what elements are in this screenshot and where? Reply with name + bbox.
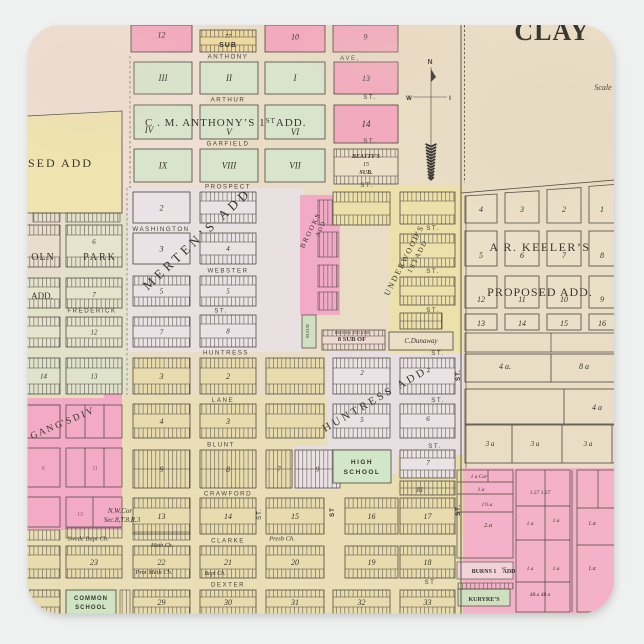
svg-text:3: 3	[159, 372, 164, 381]
svg-text:13: 13	[91, 372, 99, 380]
svg-text:6: 6	[426, 415, 430, 423]
svg-text:N.W.Cor: N.W.Cor	[107, 507, 133, 515]
svg-text:GARFIELD: GARFIELD	[207, 141, 250, 148]
svg-text:ST: ST	[425, 579, 436, 586]
svg-text:ADD.: ADD.	[31, 291, 53, 301]
svg-text:PROPOSED ADD.: PROPOSED ADD.	[487, 285, 593, 299]
svg-text:5: 5	[360, 416, 364, 424]
svg-text:1.a: 1.a	[553, 518, 560, 524]
svg-text:7: 7	[92, 291, 96, 299]
svg-text:77: 77	[225, 34, 232, 40]
svg-text:21: 21	[224, 558, 232, 567]
svg-text:9: 9	[316, 465, 320, 473]
svg-text:CRAWFORD: CRAWFORD	[204, 491, 252, 498]
svg-text:5: 5	[226, 287, 230, 295]
svg-text:ST.: ST.	[214, 308, 227, 315]
svg-text:1.a: 1.a	[588, 566, 596, 572]
svg-text:8: 8	[226, 327, 230, 335]
svg-text:5: 5	[479, 251, 483, 260]
svg-text:SCHOOL: SCHOOL	[75, 605, 107, 611]
svg-text:15: 15	[291, 512, 299, 521]
svg-text:Meth Ch.: Meth Ch.	[150, 543, 173, 549]
svg-text:3: 3	[159, 244, 164, 253]
svg-text:LANE: LANE	[212, 397, 234, 404]
svg-text:SCHOOL: SCHOOL	[344, 469, 381, 476]
svg-text:2: 2	[226, 372, 230, 381]
svg-text:20: 20	[291, 558, 299, 567]
svg-text:ST.: ST.	[428, 443, 441, 450]
svg-text:WEBSTER: WEBSTER	[207, 268, 248, 275]
svg-text:17: 17	[424, 512, 433, 521]
svg-text:VIII: VIII	[222, 161, 237, 171]
svg-text:ADD: ADD	[503, 569, 517, 575]
svg-text:1.a: 1.a	[588, 521, 596, 527]
svg-text:ST.: ST.	[431, 350, 444, 357]
svg-text:16: 16	[598, 319, 606, 328]
svg-text:16: 16	[368, 512, 376, 521]
svg-text:14: 14	[518, 319, 526, 328]
svg-text:7: 7	[426, 459, 430, 467]
svg-text:2: 2	[160, 203, 164, 212]
svg-text:COMMON: COMMON	[74, 596, 108, 602]
svg-text:7: 7	[277, 465, 281, 473]
svg-text:13: 13	[158, 512, 166, 521]
svg-text:ST.: ST.	[431, 397, 444, 404]
svg-text:4 a.: 4 a.	[499, 362, 511, 371]
svg-text:ST.: ST.	[426, 268, 439, 275]
svg-text:SUB.: SUB.	[359, 170, 373, 176]
svg-text:ST.: ST.	[363, 138, 376, 145]
svg-text:A R. KEELER’S: A R. KEELER’S	[489, 240, 590, 254]
svg-text:14: 14	[40, 372, 48, 380]
svg-text:29: 29	[158, 598, 166, 607]
svg-text:1.a: 1.a	[527, 521, 534, 527]
svg-text:1½.a: 1½.a	[482, 501, 493, 508]
svg-text:OLN: OLN	[31, 252, 55, 263]
svg-text:7: 7	[160, 328, 164, 336]
svg-text:SUB: SUB	[219, 42, 237, 49]
svg-text:23: 23	[90, 558, 98, 567]
svg-text:BLUNT: BLUNT	[207, 442, 235, 449]
svg-text:8 a: 8 a	[579, 362, 589, 371]
svg-text:48.a 48.a: 48.a 48.a	[530, 591, 551, 598]
svg-text:ST.: ST.	[360, 182, 373, 189]
svg-text:ANTHONY: ANTHONY	[208, 54, 249, 61]
svg-text:33: 33	[423, 598, 432, 607]
svg-text:3: 3	[225, 417, 230, 426]
svg-text:HUNTRESS: HUNTRESS	[203, 350, 249, 357]
svg-text:8 SUB OF: 8 SUB OF	[338, 336, 366, 343]
svg-text:13: 13	[77, 512, 83, 518]
svg-text:8: 8	[600, 251, 604, 260]
svg-text:22: 22	[158, 558, 166, 567]
svg-text:C.Dunaway: C.Dunaway	[404, 337, 438, 345]
svg-text:Prot Meth Ch.: Prot Meth Ch.	[134, 569, 173, 576]
svg-text:18: 18	[424, 558, 432, 567]
svg-text:3 a: 3 a	[530, 440, 540, 448]
svg-text:5: 5	[160, 287, 164, 295]
svg-text:13: 13	[477, 319, 485, 328]
svg-text:ARTHUR: ARTHUR	[211, 97, 246, 104]
svg-text:PARK: PARK	[83, 252, 117, 263]
svg-text:81: 81	[417, 486, 424, 494]
svg-text:2.a: 2.a	[484, 522, 492, 529]
svg-text:1.a: 1.a	[478, 487, 485, 493]
svg-text:Bapt Ch.: Bapt Ch.	[204, 571, 225, 577]
svg-text:VII: VII	[289, 161, 301, 171]
svg-text:BURNS 1: BURNS 1	[472, 569, 497, 575]
svg-text:9: 9	[600, 295, 604, 304]
svg-text:FREDERICK: FREDERICK	[67, 308, 116, 315]
svg-text:1.a: 1.a	[553, 566, 560, 572]
svg-text:1 a Cor: 1 a Cor	[471, 474, 489, 480]
svg-text:Sec.8,T.8,R.3: Sec.8,T.8,R.3	[104, 516, 141, 524]
svg-text:3 a: 3 a	[485, 440, 495, 448]
svg-text:11: 11	[92, 466, 98, 472]
svg-text:15: 15	[560, 319, 568, 328]
svg-text:30: 30	[223, 598, 232, 607]
svg-text:M.SUB: M.SUB	[305, 324, 310, 338]
svg-text:Presb Ch.: Presb Ch.	[268, 536, 295, 543]
svg-text:ST: ST	[330, 507, 336, 517]
svg-text:WASHINGTON: WASHINGTON	[132, 226, 189, 233]
svg-text:Swede Bapt Ch.: Swede Bapt Ch.	[67, 536, 109, 543]
svg-text:6: 6	[92, 238, 96, 246]
svg-text:31: 31	[290, 598, 299, 607]
svg-text:9: 9	[42, 466, 45, 472]
svg-text:2: 2	[360, 369, 364, 377]
svg-text:3 a: 3 a	[583, 440, 593, 448]
svg-text:ST.: ST.	[257, 508, 263, 520]
svg-text:8: 8	[226, 465, 230, 474]
svg-text:12: 12	[91, 328, 99, 336]
svg-text:CLARKE: CLARKE	[211, 538, 245, 545]
svg-text:4: 4	[160, 417, 164, 426]
svg-text:12: 12	[477, 295, 485, 304]
svg-text:14: 14	[362, 119, 372, 129]
svg-text:KURYRE’S: KURYRE’S	[468, 597, 500, 603]
svg-text:19: 19	[368, 558, 376, 567]
svg-text:15: 15	[363, 162, 369, 168]
svg-text:ST.: ST.	[426, 307, 439, 314]
svg-text:32: 32	[357, 598, 366, 607]
svg-text:ST.: ST.	[426, 225, 439, 232]
svg-text:HIGH: HIGH	[351, 459, 373, 466]
svg-text:14: 14	[224, 512, 232, 521]
svg-text:BROOKS 2ND ADD: BROOKS 2ND ADD	[335, 330, 370, 335]
svg-text:9: 9	[160, 465, 164, 474]
svg-text:BEATTY’S: BEATTY’S	[351, 154, 381, 160]
svg-text:IX: IX	[158, 161, 168, 171]
svg-text:DEXTER: DEXTER	[211, 582, 245, 589]
svg-text:1.a: 1.a	[527, 566, 534, 572]
svg-text:II: II	[225, 73, 233, 83]
svg-text:1.57 1.57: 1.57 1.57	[530, 490, 551, 496]
svg-text:4: 4	[226, 245, 230, 253]
svg-text:4 a: 4 a	[592, 403, 602, 412]
